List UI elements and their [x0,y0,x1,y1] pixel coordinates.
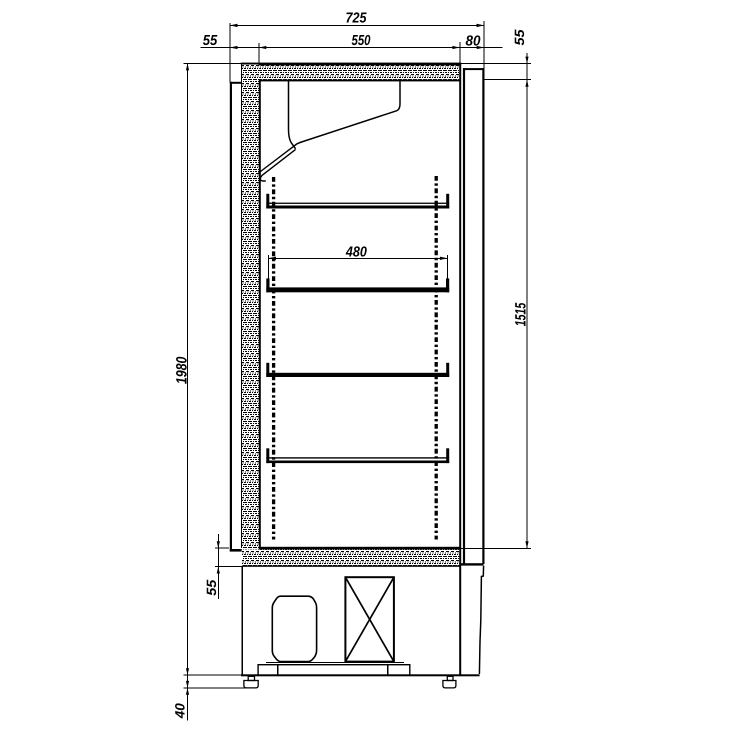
svg-text:725: 725 [346,11,368,27]
svg-text:80: 80 [466,34,481,50]
svg-text:550: 550 [352,33,371,49]
svg-text:55: 55 [203,33,218,49]
svg-text:40: 40 [173,703,188,719]
svg-text:55: 55 [512,29,527,46]
svg-text:1980: 1980 [174,356,191,384]
svg-text:1515: 1515 [513,302,530,326]
svg-text:480: 480 [345,245,367,261]
svg-text:55: 55 [204,579,219,596]
